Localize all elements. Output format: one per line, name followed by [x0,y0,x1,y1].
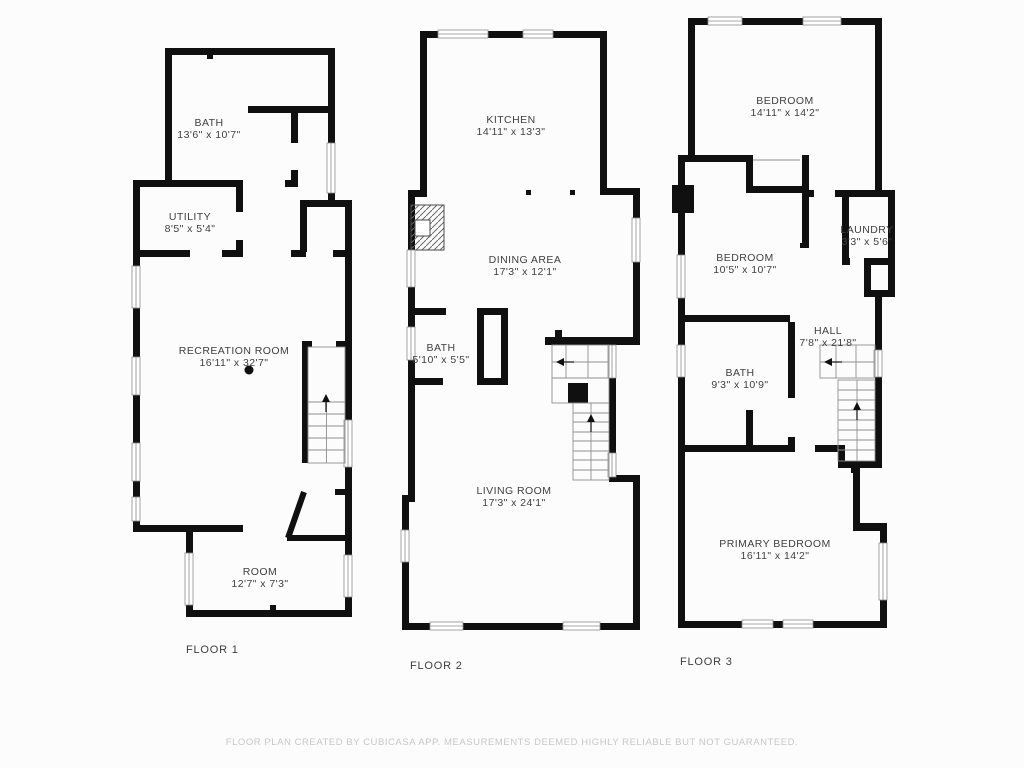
room-name: BEDROOM [751,95,820,107]
room-dims: 13'6" x 10'7" [177,129,240,141]
room-name: LAUNDRY [840,224,893,236]
room-label-room-f1: ROOM 12'7" x 7'3" [231,566,288,590]
room-label-laundry-f3: LAUNDRY 3'3" x 5'6" [840,224,893,248]
room-name: RECREATION ROOM [179,345,289,357]
room-label-bedroom-2-f3: BEDROOM 10'5" x 10'7" [713,252,776,276]
room-dims: 10'5" x 10'7" [713,264,776,276]
floor-label-3: FLOOR 3 [680,656,733,668]
room-name: LIVING ROOM [477,485,552,497]
room-label-utility-f1: UTILITY 8'5" x 5'4" [165,211,216,235]
room-label-bedroom-1-f3: BEDROOM 14'11" x 14'2" [751,95,820,119]
room-dims: 12'7" x 7'3" [231,578,288,590]
room-label-hall-f3: HALL 7'8" x 21'8" [799,325,856,349]
room-name: PRIMARY BEDROOM [719,538,830,550]
floor-2-stairs [552,345,609,480]
room-name: DINING AREA [489,254,562,266]
room-label-bath-f3: BATH 9'3" x 10'9" [711,367,768,391]
room-name: HALL [799,325,856,337]
room-dims: 14'11" x 13'3" [477,126,546,138]
room-label-recreation-room-f1: RECREATION ROOM 16'11" x 32'7" [179,345,289,369]
room-dims: 17'3" x 24'1" [477,497,552,509]
angled-wall [288,492,304,538]
floor-plan-canvas: BATH 13'6" x 10'7" UTILITY 8'5" x 5'4" R… [0,0,1024,768]
floor-1-walls [133,48,352,617]
room-name: BATH [177,117,240,129]
room-dims: 5'10" x 5'5" [412,354,469,366]
room-dims: 3'3" x 5'6" [840,236,893,248]
footer-disclaimer: FLOOR PLAN CREATED BY CUBICASA APP. MEAS… [0,737,1024,748]
stair-direction-arrow-up [587,414,595,432]
room-dims: 9'3" x 10'9" [711,379,768,391]
stair-direction-arrow-up [322,394,330,412]
room-name: KITCHEN [477,114,546,126]
room-dims: 16'11" x 32'7" [179,357,289,369]
room-dims: 16'11" x 14'2" [719,550,830,562]
stair-direction-arrow-left [824,358,842,366]
floor-label-1: FLOOR 1 [186,644,239,656]
room-name: ROOM [231,566,288,578]
room-label-dining-area-f2: DINING AREA 17'3" x 12'1" [489,254,562,278]
stair-direction-arrow-left [556,358,574,366]
room-name: BATH [412,342,469,354]
room-label-bath-f1: BATH 13'6" x 10'7" [177,117,240,141]
room-name: UTILITY [165,211,216,223]
room-dims: 8'5" x 5'4" [165,223,216,235]
fireplace-icon [411,205,444,250]
room-dims: 7'8" x 21'8" [799,337,856,349]
room-name: BATH [711,367,768,379]
room-label-kitchen-f2: KITCHEN 14'11" x 13'3" [477,114,546,138]
room-dims: 17'3" x 12'1" [489,266,562,278]
floor-1-plan [132,48,352,617]
stair-direction-arrow-up [853,402,861,420]
floor-label-2: FLOOR 2 [410,660,463,672]
room-name: BEDROOM [713,252,776,264]
room-label-primary-bedroom-f3: PRIMARY BEDROOM 16'11" x 14'2" [719,538,830,562]
room-label-living-room-f2: LIVING ROOM 17'3" x 24'1" [477,485,552,509]
room-dims: 14'11" x 14'2" [751,107,820,119]
room-label-bath-f2: BATH 5'10" x 5'5" [412,342,469,366]
